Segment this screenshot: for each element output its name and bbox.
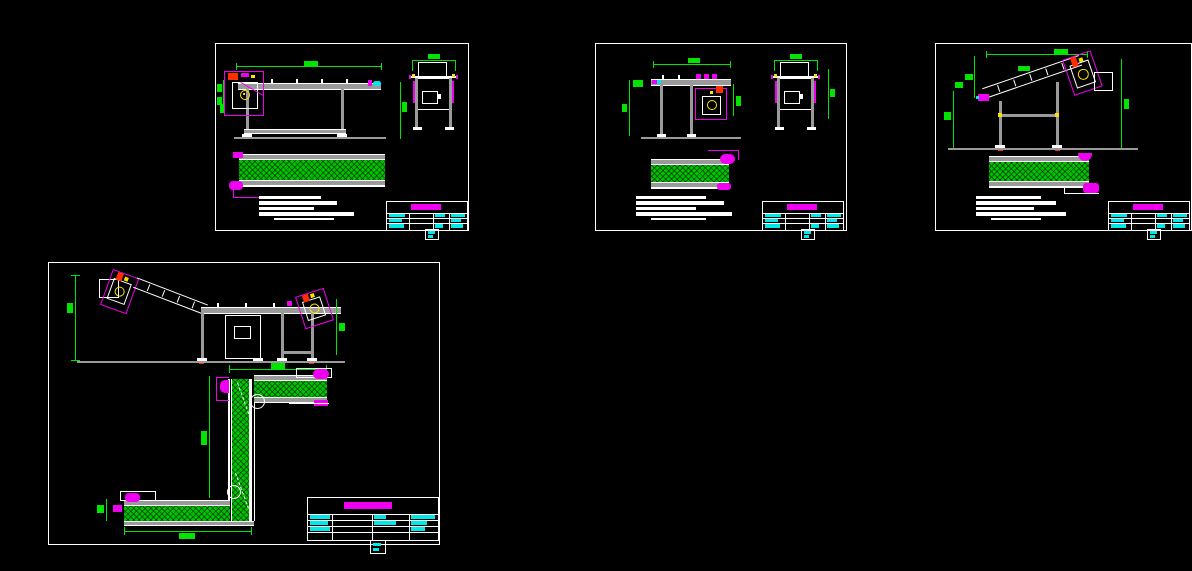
- dim-tick: [124, 527, 125, 535]
- magenta-fitting: [978, 94, 989, 101]
- table-line: [332, 514, 333, 540]
- frame-line: [780, 78, 811, 79]
- magenta-strip: [814, 81, 816, 103]
- note-line: [636, 201, 724, 205]
- dim-tick: [455, 60, 456, 71]
- motor-detail-box: [295, 288, 335, 332]
- drawing-sheet-3[interactable]: [935, 43, 1192, 231]
- rail-post: [678, 75, 680, 79]
- revision-cell: [1147, 229, 1161, 240]
- belt-hatch: [239, 159, 385, 181]
- detail-callout-box: [1094, 72, 1113, 91]
- rail-post: [245, 303, 247, 307]
- magenta-strip: [413, 81, 415, 103]
- column: [415, 78, 418, 127]
- dim-line: [236, 66, 382, 67]
- table-text-block: [435, 214, 445, 217]
- declined-belt: [133, 277, 208, 315]
- motor-front: [422, 91, 438, 104]
- revision-cell: [425, 229, 439, 240]
- table-text-block: [374, 521, 396, 525]
- belt-rung: [162, 290, 165, 297]
- table-text-block: [451, 214, 465, 217]
- dim-text-block: [622, 104, 627, 112]
- transition-arc: [227, 485, 241, 499]
- drawing-sheet-2[interactable]: [595, 43, 847, 231]
- note-line: [636, 207, 696, 210]
- cross-beam: [281, 351, 314, 354]
- table-text-block: [765, 219, 778, 222]
- table-text-block: [373, 543, 381, 546]
- table-text-block: [310, 527, 330, 531]
- end-elevation-view: [409, 54, 459, 139]
- table-line: [308, 532, 438, 533]
- drive-roller-icon: [220, 380, 229, 393]
- table-text-block: [411, 515, 435, 519]
- rail-post: [346, 79, 348, 83]
- tail-roller-icon: [373, 81, 381, 86]
- note-line: [976, 201, 1056, 205]
- table-text-block: [1150, 235, 1155, 238]
- note-line: [636, 212, 732, 216]
- bolt-icon: [774, 74, 777, 77]
- dim-text-block: [271, 363, 285, 369]
- note-line: [259, 201, 337, 205]
- table-text-block: [1173, 219, 1183, 222]
- magenta-fitting: [818, 75, 820, 79]
- table-text-block: [411, 527, 425, 531]
- machine-box: [225, 315, 261, 359]
- dim-line: [209, 376, 210, 498]
- table-line: [825, 213, 826, 230]
- dim-line: [400, 82, 401, 139]
- dim-line: [733, 84, 734, 116]
- table-line: [433, 213, 434, 230]
- dim-line: [412, 60, 456, 61]
- table-text-block: [411, 521, 427, 525]
- dim-text-block: [1054, 49, 1068, 54]
- yellow-marker: [710, 91, 713, 94]
- note-line: [259, 212, 354, 216]
- belt-rung: [147, 284, 150, 291]
- dim-text-block: [402, 102, 407, 112]
- motor-shaft-icon: [240, 90, 250, 100]
- magenta-fitting: [233, 152, 243, 158]
- magenta-fitting: [287, 301, 292, 306]
- cross-beam: [999, 114, 1059, 117]
- dim-text-block: [633, 80, 643, 87]
- table-text-block: [451, 219, 461, 222]
- dim-line: [828, 69, 829, 119]
- table-text-block: [428, 231, 435, 234]
- foot: [775, 127, 784, 130]
- joint-marker: [1055, 113, 1059, 117]
- dim-line: [974, 56, 975, 98]
- revision-cell: [801, 229, 815, 240]
- dim-tick: [817, 60, 818, 71]
- title-block: [307, 497, 439, 541]
- magenta-fitting: [717, 183, 731, 190]
- title-block: [762, 201, 844, 231]
- note-line: [259, 207, 314, 210]
- table-line: [449, 213, 450, 230]
- note-line: [976, 196, 1041, 199]
- motor-center-dot: [243, 93, 245, 95]
- table-text-block: [804, 231, 811, 234]
- dim-text-block: [830, 89, 835, 97]
- dim-text-block: [955, 82, 963, 88]
- table-text-block: [1111, 214, 1127, 217]
- title-block: [1108, 201, 1190, 231]
- motor-front: [784, 91, 800, 104]
- belt-hatch: [231, 379, 250, 521]
- drive-roller-icon: [720, 154, 735, 164]
- table-text-block: [1111, 219, 1124, 222]
- table-text-block: [310, 521, 328, 525]
- table-text-block: [804, 235, 809, 238]
- dim-text-block: [339, 323, 345, 331]
- note-line: [991, 218, 1041, 220]
- bolt-icon: [452, 74, 455, 77]
- dim-text-block: [944, 112, 951, 120]
- frame-line: [780, 109, 811, 110]
- table-text-block: [1111, 224, 1126, 228]
- leg: [341, 88, 344, 135]
- table-text-block: [765, 214, 781, 217]
- motor-detail-box: [695, 88, 727, 120]
- motor-shaft-icon: [707, 100, 717, 110]
- hood: [780, 62, 809, 77]
- ground-line: [234, 137, 386, 139]
- transition-arc: [250, 394, 265, 409]
- ground-line: [641, 137, 741, 139]
- dim-text-block: [179, 533, 195, 539]
- dim-text-block: [1018, 66, 1030, 71]
- magenta-fitting: [241, 73, 249, 77]
- magenta-fitting: [368, 80, 372, 86]
- dim-tick: [774, 60, 775, 71]
- magenta-fitting: [456, 75, 458, 79]
- rail-post: [296, 79, 298, 83]
- dim-line: [774, 60, 818, 61]
- table-text-block: [428, 235, 433, 238]
- table-text-block: [389, 219, 402, 222]
- ground-line: [948, 148, 1138, 150]
- machine-inner: [234, 326, 251, 339]
- dim-line: [629, 80, 630, 136]
- table-text-block: [451, 224, 463, 228]
- table-text-block: [310, 515, 330, 519]
- belt-edge-line: [289, 403, 329, 404]
- title-bar: [411, 204, 441, 210]
- drawing-sheet-1[interactable]: [215, 43, 469, 231]
- belt-rung: [997, 85, 1000, 92]
- table-text-block: [765, 224, 780, 228]
- dim-text-block: [304, 61, 318, 66]
- table-text-block: [1157, 224, 1165, 228]
- tail-roller-icon: [976, 96, 979, 99]
- belt-rail: [124, 521, 254, 526]
- dim-text-block: [1124, 99, 1129, 109]
- note-line: [274, 218, 334, 220]
- drawing-sheet-4[interactable]: [48, 262, 440, 545]
- table-text-block: [827, 224, 839, 228]
- dim-line: [336, 299, 337, 355]
- note-line: [259, 196, 321, 199]
- frame-line: [418, 78, 449, 79]
- dim-tick: [71, 360, 80, 361]
- dim-text-block: [201, 431, 207, 445]
- table-text-block: [1150, 231, 1157, 234]
- table-line: [1131, 213, 1132, 230]
- motor-front-hub: [799, 94, 803, 99]
- rail-post: [217, 303, 219, 307]
- rail-post: [321, 79, 323, 83]
- magenta-strip: [452, 81, 454, 103]
- bolt-icon: [814, 74, 817, 77]
- dim-text-block: [688, 58, 700, 63]
- dim-text-block: [428, 54, 440, 59]
- dim-tick: [653, 61, 654, 68]
- table-text-block: [435, 224, 443, 228]
- bolt-icon: [412, 74, 415, 77]
- hood: [418, 62, 447, 77]
- title-bar: [344, 502, 392, 509]
- drive-roller-icon: [313, 369, 329, 379]
- dim-text-block: [965, 74, 973, 80]
- title-bar: [787, 204, 817, 210]
- rail-post: [662, 75, 664, 79]
- end-elevation-view: [771, 54, 821, 139]
- title-block: [386, 201, 468, 231]
- dim-text-block: [67, 303, 73, 313]
- magenta-fitting: [712, 74, 717, 79]
- magenta-fitting: [409, 75, 411, 79]
- table-text-block: [811, 214, 821, 217]
- belt-hatch: [254, 380, 327, 398]
- red-marker: [228, 73, 238, 80]
- belt-hatch: [989, 161, 1089, 182]
- magenta-fitting: [704, 74, 709, 79]
- dim-tick: [986, 51, 987, 58]
- belt-rung: [177, 296, 180, 303]
- rail-post: [273, 303, 275, 307]
- leg: [999, 101, 1002, 148]
- leg: [201, 312, 204, 358]
- magenta-fitting: [1083, 183, 1099, 193]
- ground-line: [77, 361, 345, 363]
- dim-line: [953, 91, 954, 148]
- dim-text-block: [790, 54, 802, 59]
- dim-text-block: [736, 96, 741, 106]
- rail-post: [271, 79, 273, 83]
- note-line: [651, 218, 706, 220]
- dim-tick: [236, 63, 237, 70]
- belt-rung: [1013, 79, 1016, 86]
- table-line: [809, 213, 810, 230]
- table-text-block: [389, 214, 405, 217]
- lower-frame-bar: [244, 129, 346, 134]
- magenta-strip: [775, 81, 777, 103]
- red-marker: [716, 86, 723, 93]
- belt-rung: [1045, 68, 1048, 75]
- table-line: [785, 213, 786, 230]
- table-text-block: [1157, 214, 1167, 217]
- motor-detail-box: [99, 269, 139, 316]
- foot: [807, 127, 816, 130]
- table-line: [1171, 213, 1172, 230]
- belt-hatch: [651, 164, 729, 183]
- magenta-fitting: [113, 505, 122, 512]
- table-text-block: [811, 224, 819, 228]
- column: [777, 78, 780, 127]
- table-text-block: [374, 515, 386, 519]
- belt-edge-line: [254, 403, 255, 521]
- dim-line: [986, 54, 1088, 55]
- leg: [690, 84, 693, 134]
- dim-tick: [412, 60, 413, 71]
- table-text-block: [373, 548, 379, 551]
- bracket-line: [1064, 188, 1065, 194]
- belt-rung: [192, 301, 195, 308]
- foot: [413, 127, 422, 130]
- magenta-fitting: [696, 74, 701, 79]
- revision-cell: [370, 540, 386, 554]
- magenta-fitting: [771, 75, 773, 79]
- joint-marker: [998, 113, 1002, 117]
- leg: [660, 84, 663, 134]
- dim-text-block: [217, 84, 222, 92]
- note-line: [976, 212, 1066, 216]
- foot: [445, 127, 454, 130]
- table-text-block: [1173, 214, 1187, 217]
- dim-tick: [229, 365, 230, 373]
- dim-line: [75, 275, 76, 361]
- yellow-marker: [251, 75, 255, 78]
- table-text-block: [827, 214, 841, 217]
- drive-roller-icon: [1078, 153, 1092, 161]
- dim-tick: [251, 527, 252, 535]
- dim-line: [106, 499, 107, 521]
- table-text-block: [389, 224, 404, 228]
- dim-line: [1121, 59, 1122, 148]
- note-line: [636, 196, 706, 199]
- frame-line: [418, 109, 449, 110]
- belt-edge-line: [989, 187, 1089, 188]
- dim-tick: [730, 61, 731, 68]
- table-text-block: [1173, 224, 1185, 228]
- bracket-line: [1064, 193, 1099, 194]
- note-line: [976, 207, 1034, 210]
- dim-tick: [71, 275, 80, 276]
- dim-tick: [381, 63, 382, 70]
- drive-roller-icon: [125, 493, 140, 502]
- cad-canvas: { "document": { "type": "cad-drawing-can…: [0, 0, 1192, 571]
- table-line: [1155, 213, 1156, 230]
- title-bar: [1133, 204, 1163, 210]
- belt-rung: [1029, 74, 1032, 81]
- motor-front-hub: [437, 94, 441, 99]
- dim-text-block: [97, 505, 104, 513]
- table-line: [409, 514, 410, 540]
- dim-line: [124, 531, 252, 532]
- table-text-block: [827, 219, 837, 222]
- table-line: [409, 213, 410, 230]
- table-line: [372, 514, 373, 540]
- dim-line: [653, 64, 731, 65]
